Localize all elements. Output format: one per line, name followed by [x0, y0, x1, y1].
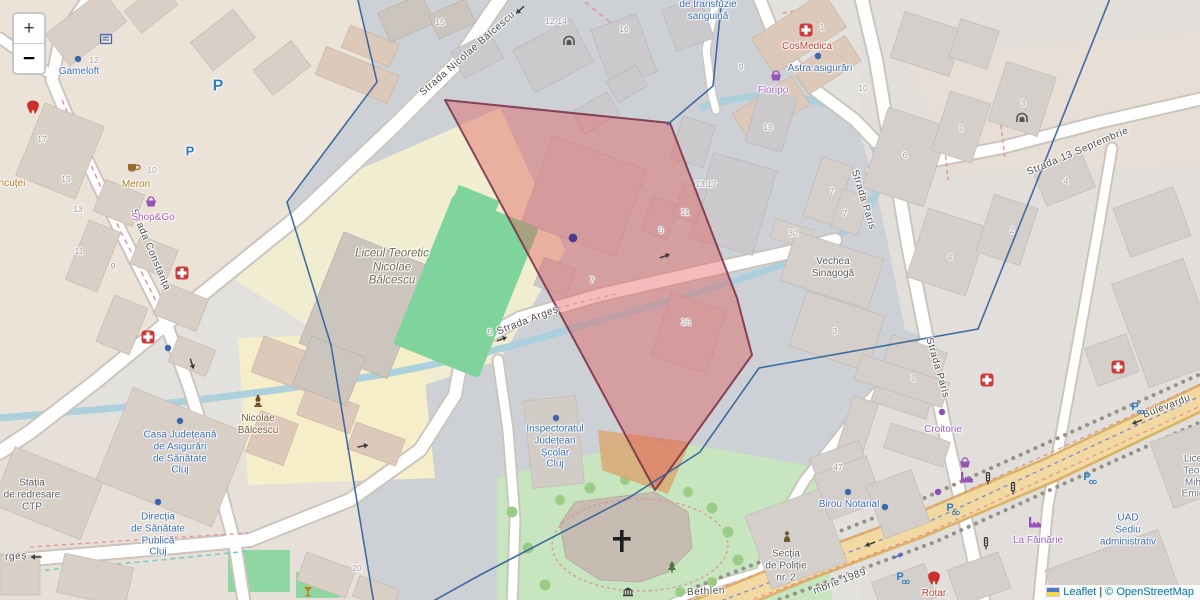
- one-way-arrow-icon: [357, 442, 369, 449]
- police-icon: [784, 531, 790, 542]
- pharmacy-icon: [176, 267, 189, 280]
- attribution-bar: Leaflet|© OpenStreetMap: [1041, 585, 1200, 600]
- osm-link[interactable]: © OpenStreetMap: [1105, 586, 1194, 598]
- zoom-out-button[interactable]: −: [14, 43, 44, 73]
- dentist-icon: [27, 101, 39, 114]
- one-way-arrow-icon: [864, 539, 876, 548]
- bicycle-parking-icon: [1131, 401, 1144, 414]
- bicycle-parking-icon: [896, 571, 909, 584]
- tree-icon: [668, 561, 676, 573]
- poi-dot-icon: [177, 418, 183, 424]
- poi-dot-icon: [939, 409, 945, 415]
- bar-icon: [304, 587, 312, 596]
- poi-dot-icon: [882, 504, 888, 510]
- one-way-arrow-icon: [659, 252, 671, 261]
- poi-dot-icon: [155, 499, 161, 505]
- pharmacy-icon: [981, 374, 994, 387]
- dentist-icon: [928, 572, 940, 585]
- ukraine-flag-icon: [1047, 588, 1059, 596]
- classical-building-icon: [623, 587, 633, 596]
- zoom-in-button[interactable]: +: [14, 14, 44, 43]
- factory-icon: [961, 472, 973, 483]
- archway-icon: [1017, 114, 1027, 123]
- traffic-light-icon: [986, 472, 990, 485]
- bicycle-parking-icon: [946, 502, 959, 515]
- florist-icon: [771, 71, 781, 81]
- cycle-lane-arrow-icon: [892, 551, 904, 560]
- bicycle-parking-icon: [1083, 471, 1096, 484]
- poi-dot-icon: [165, 345, 171, 351]
- shop-icon: [960, 458, 970, 468]
- traffic-light-icon: [1011, 482, 1015, 495]
- amenity-icon: [101, 35, 112, 44]
- map-icons-layer: [0, 0, 1200, 600]
- pharmacy-icon: [142, 331, 155, 344]
- clinic-icon: [800, 24, 813, 37]
- leaflet-link[interactable]: Leaflet: [1063, 586, 1096, 598]
- cafe-icon: [128, 164, 140, 172]
- traffic-light-icon: [984, 537, 988, 550]
- one-way-arrow-icon: [514, 4, 526, 15]
- attribution-separator: |: [1099, 586, 1102, 598]
- one-way-arrow-icon: [31, 554, 42, 559]
- one-way-arrow-icon: [1131, 417, 1143, 426]
- poi-dot-icon: [75, 56, 81, 62]
- selection-marker-icon: [569, 234, 578, 243]
- poi-dot-icon: [553, 415, 559, 421]
- archway-icon: [564, 37, 574, 46]
- map-canvas[interactable]: P: [0, 0, 1200, 600]
- factory-icon: [1029, 517, 1041, 528]
- statue-icon: [254, 395, 261, 407]
- one-way-arrow-icon: [496, 334, 508, 343]
- pharmacy-icon: [1112, 361, 1125, 374]
- poi-dot-icon: [845, 489, 851, 495]
- one-way-arrow-icon: [188, 358, 197, 370]
- poi-dot-icon: [935, 489, 941, 495]
- poi-dot-icon: [815, 53, 821, 59]
- zoom-control: + −: [12, 12, 46, 75]
- supermarket-icon: [146, 197, 156, 207]
